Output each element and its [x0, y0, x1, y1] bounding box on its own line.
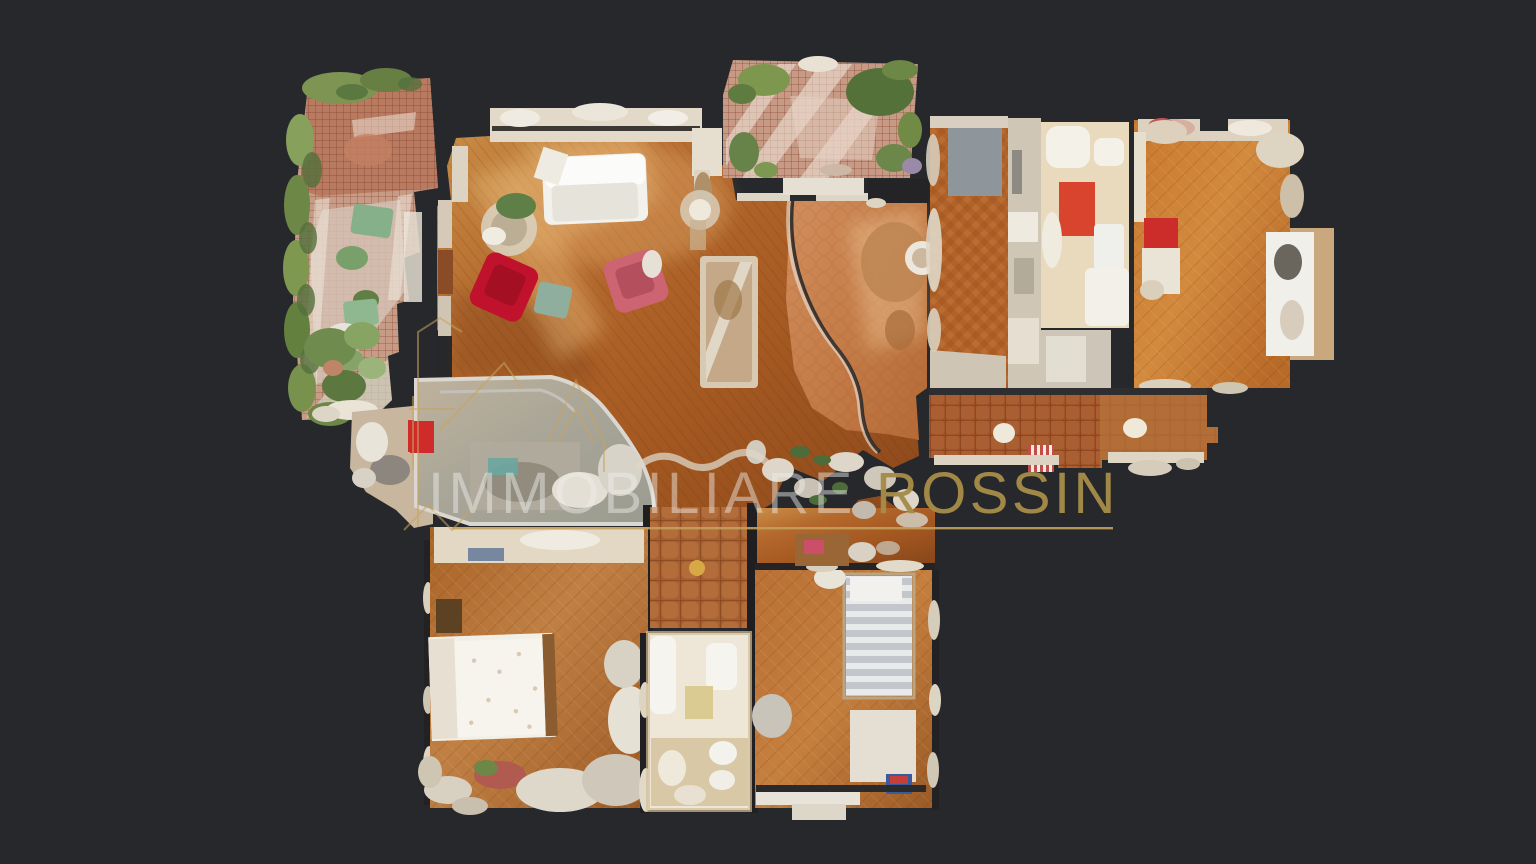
svg-text:ROSSIN: ROSSIN — [876, 461, 1119, 526]
svg-text:IMMOBILIARE: IMMOBILIARE — [428, 461, 857, 526]
